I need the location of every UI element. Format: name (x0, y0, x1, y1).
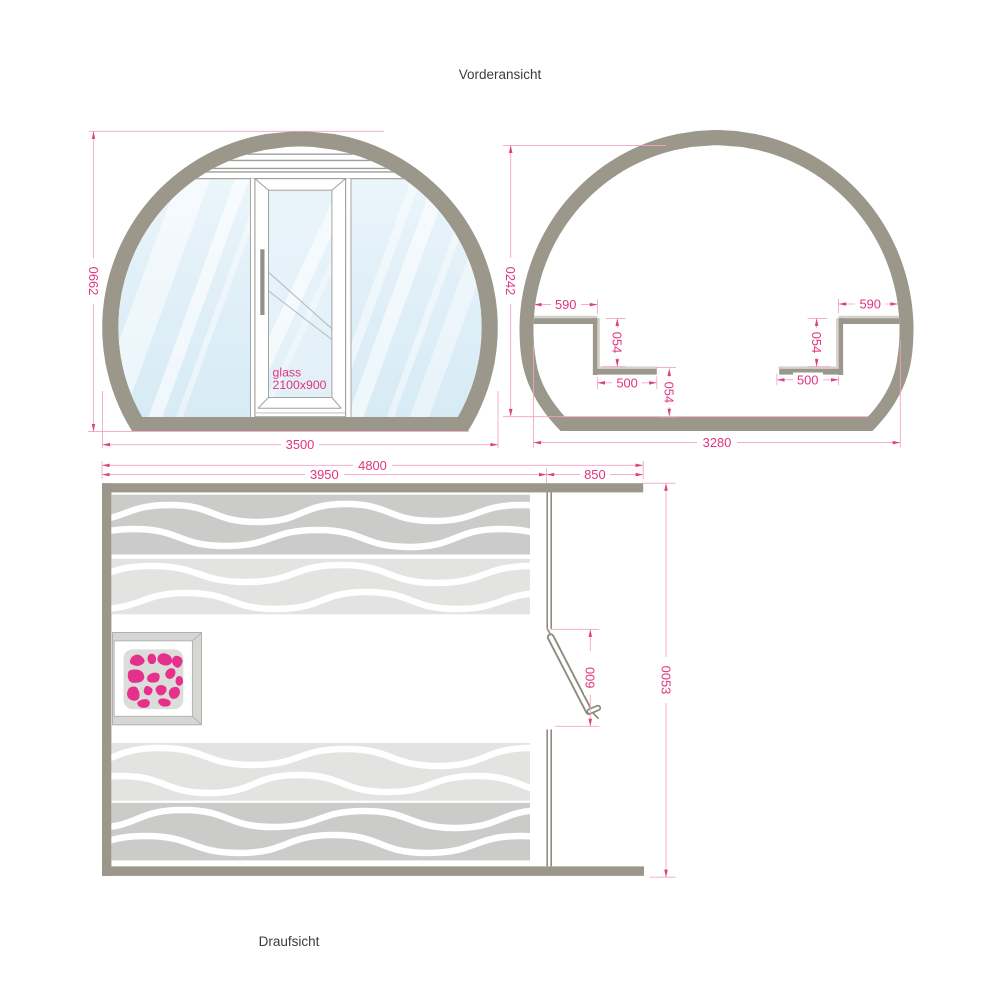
svg-text:590: 590 (859, 297, 881, 312)
svg-text:4800: 4800 (358, 458, 387, 473)
svg-text:3950: 3950 (310, 467, 339, 482)
svg-text:054: 054 (610, 332, 625, 354)
svg-text:0662: 0662 (86, 267, 101, 296)
svg-text:009: 009 (583, 667, 598, 689)
svg-text:Vorderansicht: Vorderansicht (459, 67, 542, 82)
svg-text:054: 054 (662, 382, 677, 404)
svg-text:0053: 0053 (658, 666, 673, 695)
svg-text:054: 054 (809, 332, 824, 354)
svg-text:500: 500 (616, 375, 638, 390)
svg-text:0242: 0242 (503, 267, 518, 296)
svg-text:3280: 3280 (703, 435, 732, 450)
svg-text:500: 500 (797, 372, 819, 387)
svg-text:850: 850 (584, 467, 606, 482)
svg-text:2100x900: 2100x900 (273, 378, 327, 392)
svg-text:590: 590 (555, 297, 577, 312)
svg-text:Draufsicht: Draufsicht (259, 934, 320, 949)
svg-text:3500: 3500 (286, 437, 315, 452)
